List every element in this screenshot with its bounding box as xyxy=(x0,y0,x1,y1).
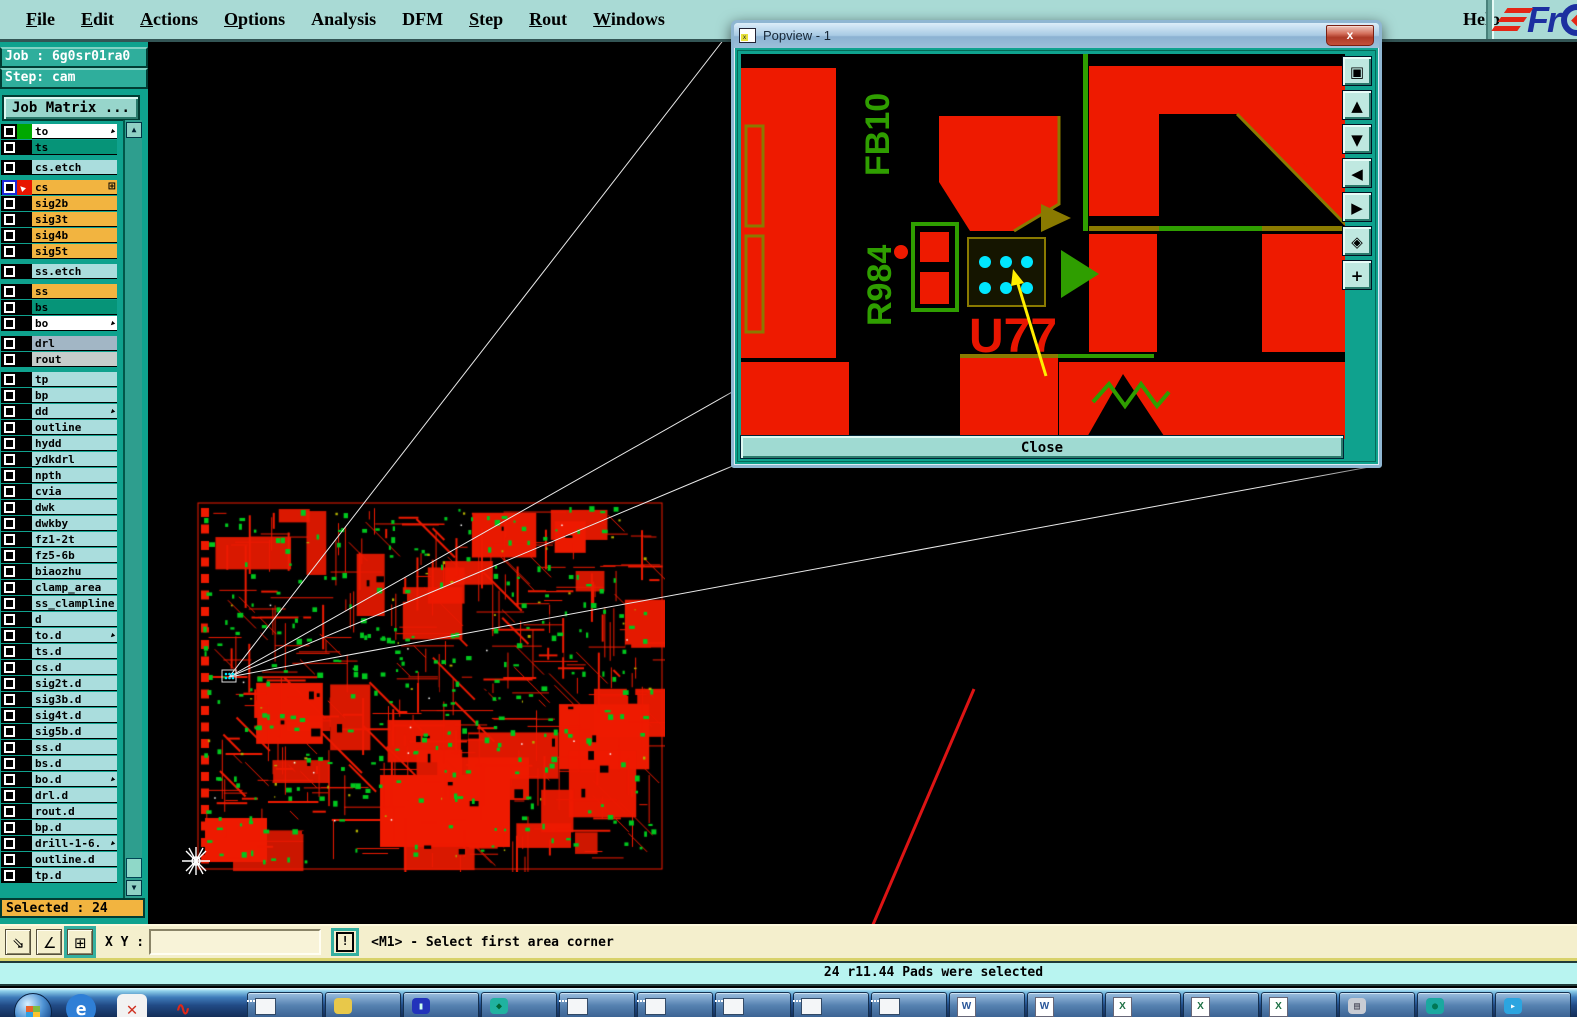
status-pointer-arrow xyxy=(858,689,974,956)
layer-color-swatch[interactable] xyxy=(17,756,32,771)
app-x-icon[interactable]: ✕ xyxy=(117,994,147,1017)
layer-name[interactable]: d xyxy=(32,612,117,627)
layer-color-swatch[interactable] xyxy=(17,196,32,211)
layer-checkbox[interactable] xyxy=(1,228,17,243)
layer-row-bp[interactable]: bp xyxy=(1,388,117,403)
checkbox-icon xyxy=(4,742,15,753)
checkbox-icon xyxy=(4,710,15,721)
windows-taskbar: e✕∿▮◆WWXXX▤●▸ xyxy=(0,988,1577,1017)
window-icon xyxy=(645,998,666,1015)
layer-color-swatch[interactable] xyxy=(17,740,32,755)
measure-angle-tool[interactable]: ∠ xyxy=(36,929,62,955)
checkbox-icon xyxy=(4,438,15,449)
layer-color-swatch[interactable] xyxy=(17,516,32,531)
layer-name[interactable]: bs.d xyxy=(32,756,117,771)
layer-color-swatch[interactable] xyxy=(17,612,32,627)
zoom-center-icon[interactable]: ◈ xyxy=(1342,226,1372,256)
layer-color-swatch[interactable] xyxy=(17,336,32,351)
popview-pcb-detail: FB10 R984 U77 xyxy=(741,54,1345,439)
checkbox-icon xyxy=(4,266,15,277)
layer-checkbox[interactable] xyxy=(1,548,17,563)
measure-distance-tool[interactable]: ⇘ xyxy=(5,929,31,955)
layer-row-ss.etch[interactable]: ss.etch xyxy=(1,264,117,279)
layer-row-rout[interactable]: rout xyxy=(1,352,117,367)
layer-name[interactable]: cs⊞ xyxy=(32,180,117,195)
layer-row-clamp_area[interactable]: clamp_area xyxy=(1,580,117,595)
layer-checkbox[interactable] xyxy=(1,468,17,483)
layer-checkbox[interactable] xyxy=(1,868,17,883)
layer-name[interactable]: bo▶ xyxy=(32,316,117,331)
checkbox-icon xyxy=(4,286,15,297)
frontline-logo: Fr xyxy=(1499,2,1577,38)
layer-checkbox[interactable] xyxy=(1,516,17,531)
checkbox-icon xyxy=(4,534,15,545)
layer-checkbox[interactable] xyxy=(1,452,17,467)
layer-name[interactable]: cvia xyxy=(32,484,117,499)
layer-checkbox[interactable] xyxy=(1,580,17,595)
layer-row-ss_clampline[interactable]: ss_clampline xyxy=(1,596,117,611)
layer-checkbox[interactable] xyxy=(1,596,17,611)
layer-color-swatch[interactable] xyxy=(17,420,32,435)
menu-dfm[interactable]: DFM xyxy=(402,9,443,30)
layer-row-sig4t.d[interactable]: sig4t.d xyxy=(1,708,117,723)
layer-checkbox[interactable] xyxy=(1,196,17,211)
layer-checkbox[interactable] xyxy=(1,804,17,819)
layer-name[interactable]: outline xyxy=(32,420,117,435)
layer-checkbox[interactable] xyxy=(1,628,17,643)
layer-row-bs.d[interactable]: bs.d xyxy=(1,756,117,771)
checkbox-icon xyxy=(4,646,15,657)
logo-circle-icon xyxy=(1561,4,1577,36)
layer-color-swatch[interactable] xyxy=(17,660,32,675)
layer-row-sig5b.d[interactable]: sig5b.d xyxy=(1,724,117,739)
layer-grid-icon: ⊞ xyxy=(108,181,116,192)
taskbar-app-window-3[interactable] xyxy=(637,992,713,1017)
layer-name[interactable]: clamp_area xyxy=(32,580,117,595)
layer-name[interactable]: ts xyxy=(32,140,117,155)
layer-checkbox[interactable] xyxy=(1,212,17,227)
status-bar: 24 r11.44 Pads were selected xyxy=(0,961,1577,986)
checkbox-icon xyxy=(4,162,15,173)
checkbox-icon xyxy=(4,678,15,689)
grid-snap-tool[interactable]: ⊞ xyxy=(67,929,93,955)
ie-icon[interactable]: e xyxy=(66,994,96,1017)
layer-row-bs[interactable]: bs xyxy=(1,300,117,315)
checkbox-icon xyxy=(4,338,15,349)
layer-checkbox[interactable] xyxy=(1,420,17,435)
layer-checkbox[interactable] xyxy=(1,436,17,451)
zoom-fit-icon[interactable]: + xyxy=(1342,260,1372,290)
menu-edit[interactable]: Edit xyxy=(81,9,114,30)
checkbox-icon xyxy=(4,774,15,785)
taskbar-app-window-6[interactable] xyxy=(871,992,947,1017)
layer-color-swatch[interactable] xyxy=(17,820,32,835)
checkbox-icon xyxy=(4,246,15,257)
layer-color-swatch[interactable] xyxy=(17,836,32,851)
menu-file[interactable]: File xyxy=(26,9,55,30)
logo-diamond-icon xyxy=(1571,14,1577,27)
layer-name[interactable]: ss xyxy=(32,284,117,299)
layer-checkbox[interactable] xyxy=(1,564,17,579)
layer-row-cs.d[interactable]: cs.d xyxy=(1,660,117,675)
layer-checkbox[interactable] xyxy=(1,820,17,835)
layer-color-swatch[interactable] xyxy=(17,228,32,243)
layer-color-swatch[interactable] xyxy=(17,692,32,707)
layer-row-ts[interactable]: ts xyxy=(1,140,117,155)
layer-row-sig2b[interactable]: sig2b xyxy=(1,196,117,211)
layer-row-rout.d[interactable]: rout.d xyxy=(1,804,117,819)
layer-color-swatch[interactable] xyxy=(17,532,32,547)
close-icon[interactable]: x xyxy=(1326,25,1374,46)
command-bar: ⇘∠⊞ X Y : ! <M1> - Select first area cor… xyxy=(0,924,1577,958)
menu-step[interactable]: Step xyxy=(469,9,503,30)
layer-name[interactable]: bp.d xyxy=(32,820,117,835)
layer-row-bo[interactable]: bo▶ xyxy=(1,316,117,331)
layer-row-hydd[interactable]: hydd xyxy=(1,436,117,451)
taskbar-app-window-5[interactable] xyxy=(793,992,869,1017)
layer-name[interactable]: drl.d xyxy=(32,788,117,803)
layer-name[interactable]: dwk xyxy=(32,500,117,515)
layer-checkbox[interactable] xyxy=(1,316,17,331)
layer-name[interactable]: drl xyxy=(32,336,117,351)
layer-checkbox[interactable] xyxy=(1,788,17,803)
taskbar-app-teal[interactable]: ● xyxy=(1417,992,1493,1017)
layer-checkbox[interactable] xyxy=(1,352,17,367)
layer-list-scrollbar[interactable]: ▲ ▼ xyxy=(123,120,142,900)
window-icon xyxy=(879,998,900,1015)
layer-row-fz5-6b[interactable]: fz5-6b xyxy=(1,548,117,563)
layer-color-swatch[interactable] xyxy=(17,724,32,739)
command-prompt-text: <M1> - Select first area corner xyxy=(371,935,614,950)
layer-checkbox[interactable] xyxy=(1,484,17,499)
cam-application-window: FileEditActionsOptionsAnalysisDFMStepRou… xyxy=(0,0,1577,1017)
layer-color-swatch[interactable] xyxy=(17,644,32,659)
layer-checkbox[interactable] xyxy=(1,740,17,755)
layer-row-sig3b.d[interactable]: sig3b.d xyxy=(1,692,117,707)
taskbar-app-teal-glyph: ● xyxy=(1426,998,1444,1014)
layer-row-sig2t.d[interactable]: sig2t.d xyxy=(1,676,117,691)
layer-checkbox[interactable] xyxy=(1,264,17,279)
layer-color-swatch[interactable] xyxy=(17,580,32,595)
layer-color-swatch[interactable] xyxy=(17,788,32,803)
layer-color-swatch[interactable] xyxy=(17,316,32,331)
checkbox-icon xyxy=(4,354,15,365)
window-icon xyxy=(567,998,588,1015)
layer-checkbox[interactable] xyxy=(1,372,17,387)
layer-name[interactable]: tp xyxy=(32,372,117,387)
layer-row-bp.d[interactable]: bp.d xyxy=(1,820,117,835)
layer-color-swatch[interactable] xyxy=(17,352,32,367)
pan-down-icon[interactable]: ▼ xyxy=(1342,124,1372,154)
scroll-up-icon[interactable]: ▲ xyxy=(126,122,142,138)
silkscreen-label-fb10: FB10 xyxy=(859,93,897,176)
layer-name[interactable]: sig3t xyxy=(32,212,117,227)
layer-color-swatch[interactable] xyxy=(17,404,32,419)
layer-name[interactable]: drill-1-6.▶ xyxy=(32,836,117,851)
layer-arrow-icon: ▶ xyxy=(108,128,116,136)
taskbar-app-window-2[interactable] xyxy=(559,992,635,1017)
layer-group: tpbpdd▶outlinehyddydkdrlnpthcviadwkdwkby… xyxy=(1,372,117,883)
checkbox-icon xyxy=(4,662,15,673)
layer-name[interactable]: tp.d xyxy=(32,868,117,883)
taskbar-app-telegram[interactable]: ▸ xyxy=(1495,992,1571,1017)
document-icon: X xyxy=(1113,997,1132,1017)
layer-checkbox[interactable] xyxy=(1,244,17,259)
layer-color-swatch[interactable] xyxy=(17,772,32,787)
layer-name[interactable]: sig5b.d xyxy=(32,724,117,739)
layer-name[interactable]: npth xyxy=(32,468,117,483)
layer-checkbox[interactable] xyxy=(1,660,17,675)
checkbox-icon xyxy=(4,838,15,849)
checkbox-icon xyxy=(4,854,15,865)
document-icon: W xyxy=(1035,997,1054,1017)
layer-name[interactable]: sig4b xyxy=(32,228,117,243)
layer-row-tp.d[interactable]: tp.d xyxy=(1,868,117,883)
layer-checkbox[interactable] xyxy=(1,336,17,351)
checkbox-icon xyxy=(4,566,15,577)
layer-color-swatch[interactable] xyxy=(17,284,32,299)
checkbox-icon xyxy=(4,214,15,225)
layer-checkbox[interactable] xyxy=(1,284,17,299)
layer-checkbox[interactable] xyxy=(1,160,17,175)
layer-name[interactable]: biaozhu xyxy=(32,564,117,579)
layer-name[interactable]: dd▶ xyxy=(32,404,117,419)
taskbar-app-word-2[interactable]: W xyxy=(1027,992,1103,1017)
layer-checkbox[interactable] xyxy=(1,532,17,547)
layer-name[interactable]: dwkby xyxy=(32,516,117,531)
layer-color-swatch[interactable] xyxy=(17,708,32,723)
layer-color-swatch[interactable] xyxy=(17,868,32,883)
checkbox-icon xyxy=(4,230,15,241)
layer-name[interactable]: bs xyxy=(32,300,117,315)
layer-color-swatch[interactable] xyxy=(17,852,32,867)
layer-row-cvia[interactable]: cvia xyxy=(1,484,117,499)
layer-checkbox[interactable] xyxy=(1,180,17,195)
checkbox-icon xyxy=(4,614,15,625)
window-icon xyxy=(801,998,822,1015)
document-icon: X xyxy=(1191,997,1210,1017)
layer-checkbox[interactable] xyxy=(1,724,17,739)
scroll-down-icon[interactable]: ▼ xyxy=(126,880,142,896)
layer-checkbox[interactable] xyxy=(1,612,17,627)
layer-name[interactable]: bo.d▶ xyxy=(32,772,117,787)
windows-flag-icon xyxy=(26,1006,40,1017)
layer-row-ts.d[interactable]: ts.d xyxy=(1,644,117,659)
layer-row-tp[interactable]: tp xyxy=(1,372,117,387)
checkbox-icon xyxy=(4,374,15,385)
layer-checkbox[interactable] xyxy=(1,772,17,787)
layer-color-swatch[interactable] xyxy=(17,300,32,315)
layer-checkbox[interactable] xyxy=(1,756,17,771)
layer-name[interactable]: ss.etch xyxy=(32,264,117,279)
layer-name[interactable]: ts.d xyxy=(32,644,117,659)
layer-color-swatch[interactable] xyxy=(17,596,32,611)
layer-name[interactable]: ss.d xyxy=(32,740,117,755)
alert-button[interactable]: ! xyxy=(331,928,359,956)
layer-name[interactable]: rout xyxy=(32,352,117,367)
step-name-field: Step: cam xyxy=(0,68,148,89)
layer-name[interactable]: ss_clampline xyxy=(32,596,117,611)
layer-color-swatch[interactable] xyxy=(17,140,32,155)
taskbar-app-teal-fish[interactable]: ◆ xyxy=(481,992,557,1017)
layer-color-swatch[interactable] xyxy=(17,676,32,691)
menu-analysis[interactable]: Analysis xyxy=(311,9,376,30)
layer-name[interactable]: sig2b xyxy=(32,196,117,211)
layer-row-sig3t[interactable]: sig3t xyxy=(1,212,117,227)
layer-row-d[interactable]: d xyxy=(1,612,117,627)
layer-row-dwkby[interactable]: dwkby xyxy=(1,516,117,531)
layer-group: ▶cs⊞sig2bsig3tsig4bsig5t xyxy=(1,180,117,259)
layer-name[interactable]: to▶ xyxy=(32,124,117,139)
layer-checkbox[interactable] xyxy=(1,692,17,707)
scrollbar-thumb[interactable] xyxy=(126,858,142,878)
layer-row-dwk[interactable]: dwk xyxy=(1,500,117,515)
checkbox-icon xyxy=(4,598,15,609)
layer-row-to[interactable]: to▶ xyxy=(1,124,117,139)
document-icon: W xyxy=(957,997,976,1017)
layer-group: ss.etch xyxy=(1,264,117,279)
layer-group: ssbsbo▶ xyxy=(1,284,117,331)
popview-body: FB10 R984 U77 ▣▲▼◀▶◈+ Close xyxy=(737,50,1376,462)
layer-color-swatch[interactable] xyxy=(17,468,32,483)
layer-checkbox[interactable] xyxy=(1,644,17,659)
layer-name[interactable]: fz1-2t xyxy=(32,532,117,547)
layer-name[interactable]: cs.d xyxy=(32,660,117,675)
layer-row-sig4b[interactable]: sig4b xyxy=(1,228,117,243)
taskbar-app-word-1[interactable]: W xyxy=(949,992,1025,1017)
layer-row-outline.d[interactable]: outline.d xyxy=(1,852,117,867)
layer-checkbox[interactable] xyxy=(1,676,17,691)
layer-row-drill-1-6.[interactable]: drill-1-6.▶ xyxy=(1,836,117,851)
taskbar-app-floppy[interactable]: ▮ xyxy=(403,992,479,1017)
popview-close-button[interactable]: Close xyxy=(740,435,1344,459)
layer-name[interactable]: rout.d xyxy=(32,804,117,819)
layer-color-swatch[interactable] xyxy=(17,212,32,227)
taskbar-app-keyboard-glyph: ▤ xyxy=(1348,998,1366,1014)
window-icon xyxy=(255,998,276,1015)
layer-color-swatch[interactable] xyxy=(17,500,32,515)
xy-coordinate-input[interactable] xyxy=(149,929,321,955)
popview-viewport[interactable]: FB10 R984 U77 xyxy=(741,54,1345,439)
popview-title-bar[interactable]: x Popview - 1 x xyxy=(734,23,1379,48)
layer-checkbox[interactable] xyxy=(1,388,17,403)
checkbox-icon xyxy=(4,822,15,833)
start-orb[interactable] xyxy=(14,993,52,1017)
layer-row-drl[interactable]: drl xyxy=(1,336,117,351)
layer-color-swatch[interactable] xyxy=(17,372,32,387)
layer-color-swatch[interactable] xyxy=(17,244,32,259)
checkbox-icon xyxy=(4,758,15,769)
layer-name[interactable]: outline.d xyxy=(32,852,117,867)
layer-checkbox[interactable] xyxy=(1,124,17,139)
layer-color-swatch[interactable] xyxy=(17,388,32,403)
layer-row-npth[interactable]: npth xyxy=(1,468,117,483)
pan-up-icon[interactable]: ▲ xyxy=(1342,90,1372,120)
menu-options[interactable]: Options xyxy=(224,9,285,30)
layer-color-swatch[interactable] xyxy=(17,436,32,451)
menu-actions[interactable]: Actions xyxy=(140,9,198,30)
menu-rout[interactable]: Rout xyxy=(529,9,567,30)
layer-color-swatch[interactable] xyxy=(17,264,32,279)
layer-checkbox[interactable] xyxy=(1,836,17,851)
popview-window-icon: x xyxy=(739,28,756,43)
checkbox-icon xyxy=(4,806,15,817)
layer-row-fz1-2t[interactable]: fz1-2t xyxy=(1,532,117,547)
layer-color-swatch[interactable] xyxy=(17,124,32,139)
taskbar-app-excel-2[interactable]: X xyxy=(1183,992,1259,1017)
layer-row-ss.d[interactable]: ss.d xyxy=(1,740,117,755)
layer-row-cs[interactable]: ▶cs⊞ xyxy=(1,180,117,195)
popup-window-icon[interactable]: ▣ xyxy=(1342,56,1372,86)
layer-row-biaozhu[interactable]: biaozhu xyxy=(1,564,117,579)
layer-panel: to▶tscs.etch▶cs⊞sig2bsig3tsig4bsig5tss.e… xyxy=(0,120,148,900)
layer-color-swatch[interactable] xyxy=(17,484,32,499)
taskbar-app-keyboard[interactable]: ▤ xyxy=(1339,992,1415,1017)
layer-row-to.d[interactable]: to.d▶ xyxy=(1,628,117,643)
layer-row-dd[interactable]: dd▶ xyxy=(1,404,117,419)
red-swoosh-icon[interactable]: ∿ xyxy=(168,994,198,1017)
layer-name[interactable]: cs.etch xyxy=(32,160,117,175)
layer-name[interactable]: to.d▶ xyxy=(32,628,117,643)
layer-color-swatch[interactable] xyxy=(17,548,32,563)
layer-row-ydkdrl[interactable]: ydkdrl xyxy=(1,452,117,467)
layer-name[interactable]: sig5t xyxy=(32,244,117,259)
pan-left-icon[interactable]: ◀ xyxy=(1342,158,1372,188)
layer-checkbox[interactable] xyxy=(1,852,17,867)
layer-checkbox[interactable] xyxy=(1,500,17,515)
menu-windows[interactable]: Windows xyxy=(593,9,665,30)
layer-row-ss[interactable]: ss xyxy=(1,284,117,299)
checkbox-icon xyxy=(4,182,15,193)
job-matrix-button[interactable]: Job Matrix ... xyxy=(2,95,140,121)
layer-row-outline[interactable]: outline xyxy=(1,420,117,435)
taskbar-app-window-1[interactable] xyxy=(247,992,323,1017)
layer-name[interactable]: sig3b.d xyxy=(32,692,117,707)
layer-row-cs.etch[interactable]: cs.etch xyxy=(1,160,117,175)
layer-color-swatch[interactable]: ▶ xyxy=(17,180,32,195)
layer-color-swatch[interactable] xyxy=(17,452,32,467)
layer-name[interactable]: hydd xyxy=(32,436,117,451)
taskbar-app-teal-fish-glyph: ◆ xyxy=(490,998,508,1014)
layer-row-sig5t[interactable]: sig5t xyxy=(1,244,117,259)
layer-color-swatch[interactable] xyxy=(17,564,32,579)
layer-name[interactable]: sig4t.d xyxy=(32,708,117,723)
layer-color-swatch[interactable] xyxy=(17,160,32,175)
layer-name[interactable]: sig2t.d xyxy=(32,676,117,691)
layer-arrow-icon: ▶ xyxy=(108,632,116,640)
taskbar-app-excel-3[interactable]: X xyxy=(1261,992,1337,1017)
taskbar-app-excel-1[interactable]: X xyxy=(1105,992,1181,1017)
checkbox-icon xyxy=(4,142,15,153)
taskbar-app-shell[interactable] xyxy=(325,992,401,1017)
layer-checkbox[interactable] xyxy=(1,300,17,315)
layer-name[interactable]: ydkdrl xyxy=(32,452,117,467)
command-tools: ⇘∠⊞ xyxy=(0,929,93,955)
layer-name[interactable]: bp xyxy=(32,388,117,403)
layer-row-bo.d[interactable]: bo.d▶ xyxy=(1,772,117,787)
checkbox-icon xyxy=(4,486,15,497)
taskbar-app-window-4[interactable] xyxy=(715,992,791,1017)
pcb-board-thumbnail[interactable] xyxy=(195,500,665,872)
layer-color-swatch[interactable] xyxy=(17,804,32,819)
pan-right-icon[interactable]: ▶ xyxy=(1342,192,1372,222)
layer-checkbox[interactable] xyxy=(1,140,17,155)
layer-checkbox[interactable] xyxy=(1,404,17,419)
layer-name[interactable]: fz5-6b xyxy=(32,548,117,563)
layer-color-swatch[interactable] xyxy=(17,628,32,643)
layer-row-drl.d[interactable]: drl.d xyxy=(1,788,117,803)
layer-checkbox[interactable] xyxy=(1,708,17,723)
